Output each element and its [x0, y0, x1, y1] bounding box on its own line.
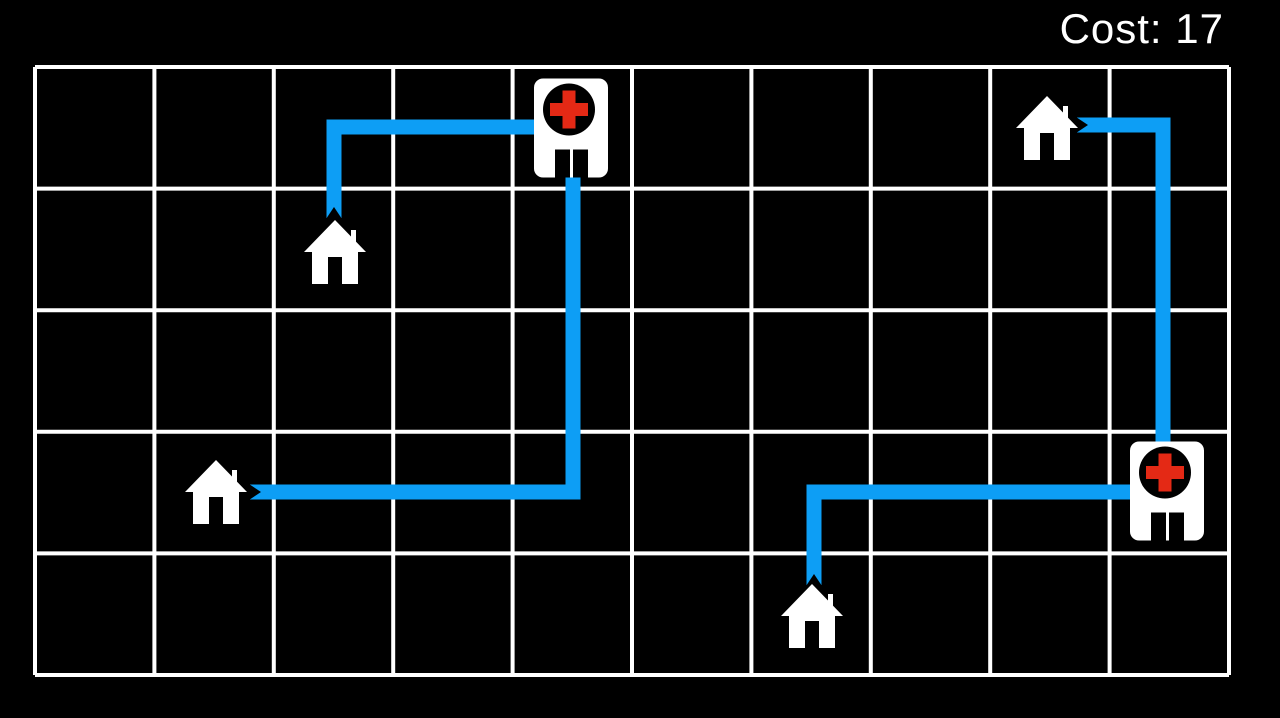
route-path[interactable]: [1077, 125, 1163, 448]
game-board[interactable]: [0, 0, 1280, 718]
house-roof: [1016, 96, 1078, 128]
house-door: [209, 497, 223, 524]
hospital-icon[interactable]: [534, 79, 608, 178]
house-door: [1040, 133, 1054, 160]
hospital-door-right: [573, 150, 588, 178]
house-door: [805, 621, 819, 648]
house-roof: [304, 220, 366, 252]
game-screen: Cost: 17: [0, 0, 1280, 718]
house-icon[interactable]: [185, 460, 247, 524]
hospital-door-right: [1169, 513, 1184, 541]
house-roof: [781, 584, 843, 616]
route-path[interactable]: [814, 492, 1140, 585]
route-path[interactable]: [250, 170, 573, 492]
house-icon[interactable]: [304, 220, 366, 284]
house-door: [328, 257, 342, 284]
hospital-icon[interactable]: [1130, 442, 1204, 541]
hospital-door-left: [1151, 513, 1166, 541]
house-roof: [185, 460, 247, 492]
house-icon[interactable]: [781, 584, 843, 648]
route-path[interactable]: [334, 127, 540, 218]
hospital-door-left: [555, 150, 570, 178]
house-icon[interactable]: [1016, 96, 1078, 160]
